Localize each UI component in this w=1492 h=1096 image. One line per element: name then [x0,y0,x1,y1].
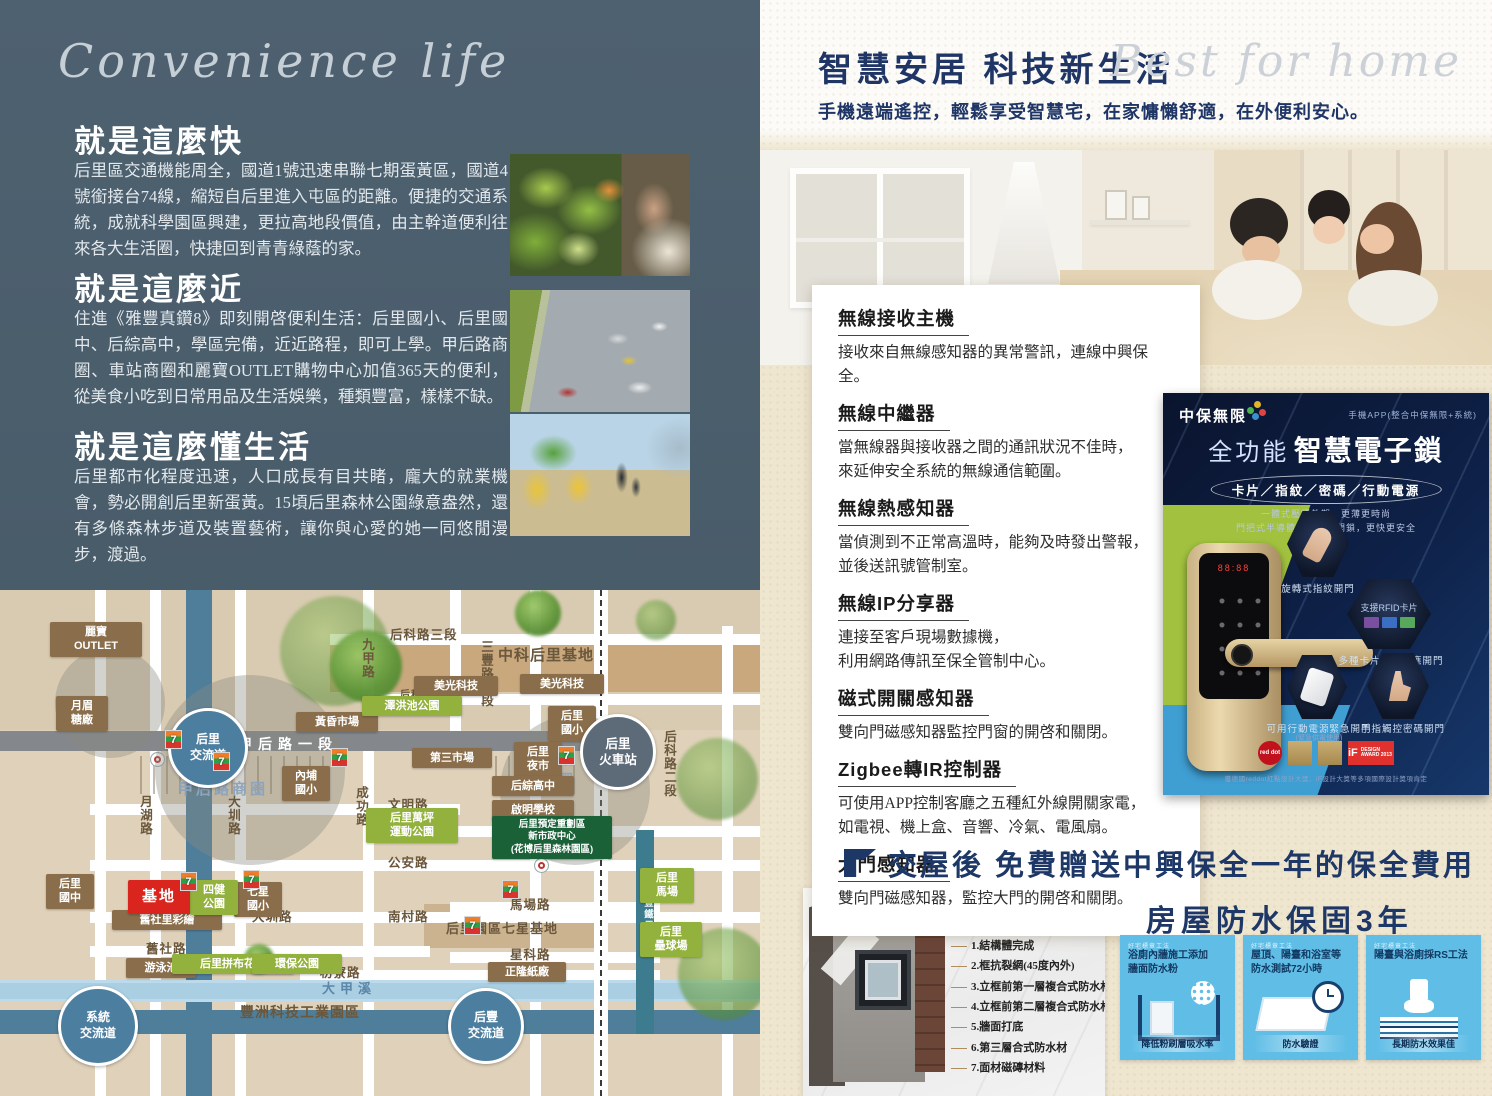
wall-section-tile [915,922,945,1072]
map-label: 三豐路三段 [477,640,496,708]
map-label: 公安路 [388,852,429,871]
section-heading-life: 就是這麼懂生活 [74,422,312,467]
feature-title: 無線接收主機 [838,305,969,336]
card-title: 浴廁內牆施工添加 牆面防水粉 [1128,949,1229,976]
seven-eleven-icon: 7 [464,916,481,935]
waterproof-step: 2.框抗裂網(45度內外) [951,956,1105,976]
photo-playground-family [510,414,690,536]
left-script-title: Convenience life [58,34,510,88]
product-title-bold: 智慧電子鎖 [1294,435,1444,466]
map-label: 月湖路 [136,795,155,836]
section-body-life: 后里都市化程度迅速，人口成長有目共睹，龐大的就業機會，勢必開創后里新蛋黃。15頃… [74,464,508,568]
section-heading-fast: 就是這麼快 [74,116,244,161]
waterproof-step: 5.牆面打底 [951,1017,1105,1037]
seven-eleven-icon: 7 [213,752,230,771]
map-label: 美光科技 [520,674,604,694]
lock-led-display: 88:88 [1207,563,1261,575]
feature-title: 磁式開關感知器 [838,685,989,716]
map-label: 九甲路 [358,638,377,679]
feature-text-line: 接收來自無線感知器的異常警訊，連線中興保全。 [838,341,1174,389]
feature-text-line: 雙向門磁感知器監控門窗的開啓和關閉。 [838,721,1174,745]
left-intro-panel: Convenience life 就是這麼快 后里區交通機能周全，國道1號迅速串… [0,0,760,590]
map-canvas: 后科路三段中科后里基地后科南路九甲路三豐路三段后科路二段月湖路大圳路成功路甲后路… [0,590,760,1096]
map-label: 內埔 國小 [282,766,330,801]
feature-list: 無線接收主機 接收來自無線感知器的異常警訊，連線中興保全。 無線中繼器 當無線器… [838,305,1174,911]
gold-award-icon [1288,741,1312,765]
feature-item: 無線IP分享器 連接至客戶現場數據機， 利用網路傳訊至保全管制中心。 [838,590,1174,674]
map-label: 后綜高中 [492,776,574,796]
app-integration-note: 手機APP(整合中保無限+系統) [1348,409,1477,421]
waterproof-step: 1.結構體完成 [951,936,1105,956]
hex4-label: 手指觸控密碼開門 [1353,721,1453,735]
waterproof-card-bathroom: 好宅標章工法 浴廁內牆施工添加 牆面防水粉 降低粉刷層吸水率 [1120,935,1235,1060]
award-badges: red dot iF DESIGN AWARD 2013 [1258,741,1394,765]
poi-logo-icon [534,858,549,873]
feature-text-line: 如電視、機上盒、音響、冷氣、電風扇。 [838,816,1174,840]
map-label: 后科路二段 [660,730,679,798]
brand-name: 中保無限 [1179,405,1247,426]
section-heading-near: 就是這麼近 [74,264,244,309]
tree [515,590,561,636]
map-label: 正隆紙廠 [488,962,566,982]
product-title-light: 全功能 [1208,439,1289,466]
waterproof-step: 6.第三層合式防水材 [951,1038,1105,1058]
feature-text-line: 利用網路傳訊至保全管制中心。 [838,650,1174,674]
feature-text-line: 可使用APP控制客廳之五種紅外線開關家電， [838,792,1174,816]
feature-text-line: 連接至客戶現場數據機， [838,626,1174,650]
interchange-label: 系統 交流道 [58,986,138,1066]
interchange-label: 后豐 交流道 [448,988,524,1064]
tree [636,600,676,640]
map-label: 南村路 [388,906,429,925]
lock-handle-sensor [1231,644,1253,666]
feature-item: 無線中繼器 當無線器與接收器之間的通訊狀況不佳時， 來延伸安全系統的無線通信範圍… [838,400,1174,484]
seven-eleven-icon: 7 [502,880,519,899]
product-disclaimer: 獲德國reddot紅點設計大獎、iF設計大獎等多項國際設計獎項肯定 [1163,773,1489,783]
seven-eleven-icon: 7 [558,746,575,765]
if-logo: iF [1348,748,1358,759]
feature-item: 無線接收主機 接收來自無線感知器的異常警訊，連線中興保全。 [838,305,1174,389]
train-station-label: 后里 火車站 [580,714,656,790]
road [450,902,660,913]
flag-icon [844,849,876,877]
feature-title: 無線IP分享器 [838,590,969,621]
map-label: 麗寶 OUTLET [50,622,142,657]
map-label: 環保公園 [252,954,342,974]
feature-text-line: 當無線器與接收器之間的通訊狀況不佳時， [838,436,1174,460]
window-opening [855,950,911,1010]
security-gift-banner: 交屋後 免費贈送中興保全一年的保全費用 [844,842,1475,884]
seven-eleven-icon: 7 [165,730,182,749]
rfid-title: 支援RFID卡片 [1361,601,1418,614]
wall-shelf [1090,220,1190,225]
map-label: 中科后里基地 [498,644,594,665]
brochure-spread: Convenience life 就是這麼快 后里區交通機能周全，國道1號迅速串… [0,0,1492,1096]
powerbank-icon [1299,667,1334,707]
picture-frame [1132,196,1150,220]
waterproof-steps-list: 1.結構體完成 2.框抗裂網(45度內外) 3.立框前第一層複合式防水材 4.立… [951,936,1105,1078]
lock-keypad [1209,585,1261,685]
banner-text: 交屋後 免費贈送中興保全一年的保全費用 [888,842,1475,884]
finger-icon [1301,524,1335,563]
if-award-sub: DESIGN AWARD 2013 [1361,748,1394,759]
gold-award-icon [1318,741,1342,765]
map-label: 月眉 糖廠 [56,696,108,731]
picture-frame [1105,190,1127,220]
map-label: 豐洲科技工業園區 [240,1002,360,1022]
brand-logo-icon [1247,401,1267,421]
reddot-award-icon: red dot [1258,741,1282,765]
smart-lock-product-card: 中保無限 手機APP(整合中保無限+系統) 全功能 智慧電子鎖 卡片／指紋／密碼… [1163,393,1489,795]
waterproof-card-rs-method: 好宅標章工法 陽臺與浴廁採RS工法 長期防水效果佳 [1366,935,1481,1060]
right-script-title: Best for home [1110,36,1462,87]
mother-shirt [1348,270,1438,326]
map-label: 甲后路一段 [238,734,338,754]
map-label: 星科路 [510,944,551,963]
rfid-cards-icon [1364,617,1415,628]
product-title: 全功能 智慧電子鎖 [1163,429,1489,469]
hand-touch-icon [1385,671,1411,701]
feature-item: Zigbee轉IR控制器 可使用APP控制客廳之五種紅外線開關家電， 如電視、機… [838,756,1174,840]
map-label: 大甲溪 [322,978,376,997]
card-badge: 防水驗證 [1253,1035,1348,1052]
map-label: 后里園區七星基地 [446,918,558,937]
map-label: 澤洪池公園 [362,696,462,716]
seven-eleven-icon: 7 [180,872,197,891]
seven-eleven-icon: 7 [331,748,348,767]
section-body-near: 住進《雅豐真鑽8》即刻開啓便利生活：后里國小、后里國中、后綜高中，學區完備，近近… [74,306,508,410]
child-face [1313,216,1345,244]
security-feature-panel: 無線接收主機 接收來自無線感知器的異常警訊，連線中興保全。 無線中繼器 當無線器… [812,285,1200,936]
waterproof-step: 3.立框前第一層複合式防水材 [951,977,1105,997]
feature-text-line: 雙向門磁感知器，監控大門的開啓和關閉。 [838,887,1174,911]
map-label: 后里 國中 [46,874,94,909]
road [450,590,461,752]
map-label: 后科路三段 [390,624,458,643]
card-badge: 長期防水效果佳 [1376,1035,1471,1052]
if-design-award-icon: iF DESIGN AWARD 2013 [1348,741,1394,765]
right-smart-home-page: 智慧安居 科技新生活 Best for home 手機遠端遙控，輕鬆享受智慧宅，… [760,0,1492,1096]
section-body-fast: 后里區交通機能周全，國道1號迅速串聯七期蛋黃區，國道4號銜接台74線，縮短自后里… [74,158,508,262]
mother-face [1360,224,1394,254]
card-title: 屋頂、陽臺和浴室等 防水測試72小時 [1251,949,1352,976]
feature-title: 無線中繼器 [838,400,950,431]
seven-eleven-icon: 7 [243,870,260,889]
map-label: 美光科技 [414,676,498,696]
map-label: 后里 夜市 [514,742,562,777]
photo-market-vegetables [510,154,690,276]
right-page-subtitle: 手機遠端遙控，輕鬆享受智慧宅，在家慵懶舒適，在外便利安心。 [818,98,1369,124]
map-label: 后里預定重劃區 新市政中心 (花博后里森林園區) [492,816,612,859]
map-label: 大圳路 [224,795,243,836]
card-badge: 降低粉刷層吸水率 [1130,1035,1225,1052]
feature-title: 無線熱感知器 [838,495,969,526]
feature-text-line: 來延伸安全系統的無線通信範圍。 [838,460,1174,484]
range-hood [988,162,1060,284]
feature-item: 無線熱感知器 當偵測到不正常高溫時，能夠及時發出警報， 並後送訊號管制室。 [838,495,1174,579]
map-label: 后里 壘球場 [640,922,702,957]
map-label: 后里萬坪 運動公園 [366,808,458,843]
waterproof-step: 4.立框前第二層複合式防水材 [951,997,1105,1017]
map-label: 第三市場 [412,748,492,768]
father-shirt [1212,260,1302,320]
tree [676,738,758,820]
card-title: 陽臺與浴廁採RS工法 [1374,949,1475,963]
feature-text-line: 當偵測到不正常高溫時，能夠及時發出警報， [838,531,1174,555]
feature-item: 磁式開關感知器 雙向門磁感知器監控門窗的開啓和關閉。 [838,685,1174,745]
waterproof-warranty-title: 房屋防水保固3年 [1146,896,1413,940]
unlock-methods: 卡片／指紋／密碼／行動電源 [1211,475,1442,504]
map-label: 四健 公園 [190,880,238,915]
waterproof-card-roof-test: 好宅標章工法 屋頂、陽臺和浴室等 防水測試72小時 防水驗證 [1243,935,1358,1060]
map-label: 后里 馬場 [640,868,694,903]
feature-text-line: 並後送訊號管制室。 [838,555,1174,579]
photo-highway-traffic [510,290,690,412]
feature-title: Zigbee轉IR控制器 [838,756,1016,787]
waterproof-step: 7.面材磁磚材料 [951,1058,1105,1078]
